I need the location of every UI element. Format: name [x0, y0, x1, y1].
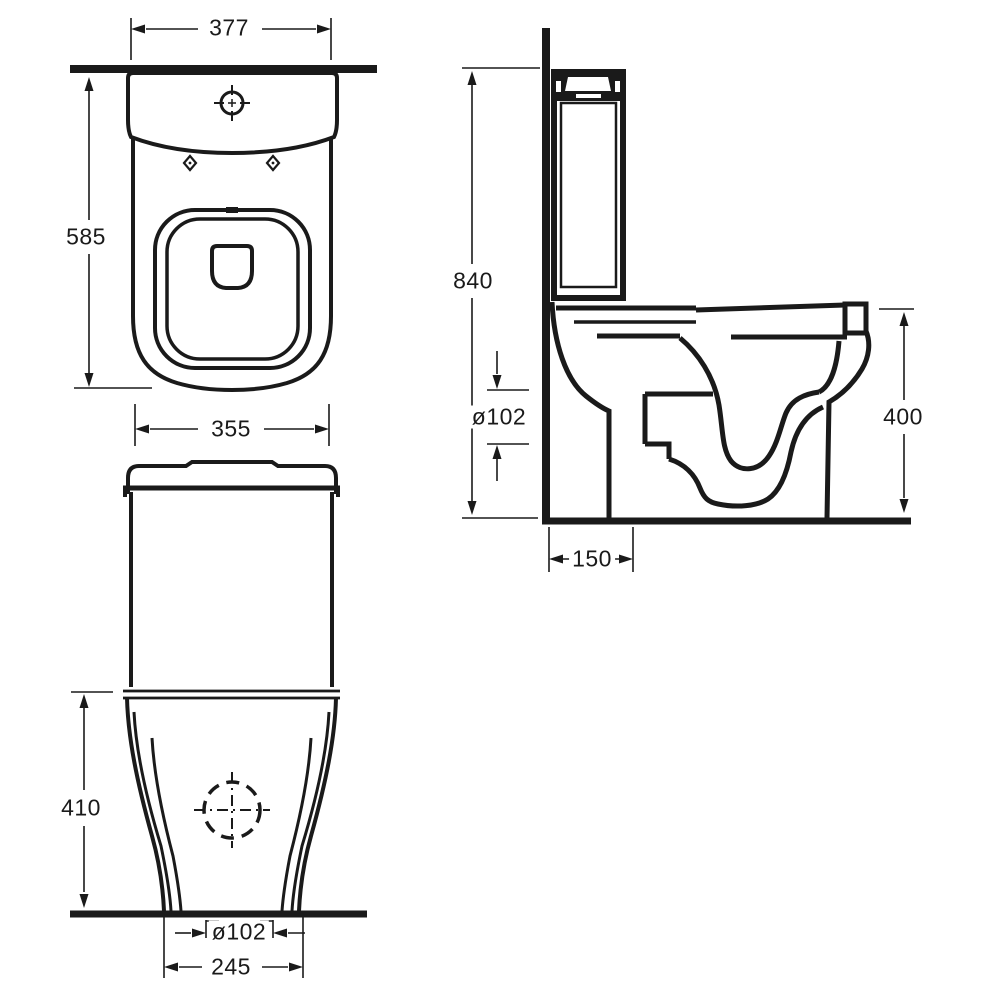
side-view-outlet — [645, 394, 713, 459]
front-view-cistern-body — [131, 492, 332, 687]
side-view-pedestal-front — [827, 331, 869, 518]
side-view-cistern-interior — [561, 103, 616, 287]
drain-outlet-icon — [194, 772, 270, 848]
side-view-lid-recess — [565, 77, 611, 91]
dim-label-side-overall-height: 840 — [450, 270, 496, 293]
side-view-seat — [696, 305, 845, 310]
drawing-linework — [0, 0, 1000, 1000]
side-view-bowl-interior — [680, 338, 819, 469]
front-view-junction — [123, 691, 340, 698]
dim-label-front-base-width: 245 — [208, 956, 254, 979]
top-view-sump — [212, 246, 252, 288]
side-view-trap — [669, 407, 823, 506]
front-view-dimensions — [71, 692, 305, 978]
front-view — [70, 462, 367, 914]
dim-label-side-bowl-height: 400 — [880, 406, 926, 429]
side-view-seat-front — [845, 304, 866, 333]
top-view — [70, 69, 377, 390]
dim-label-top-width: 377 — [206, 17, 252, 40]
front-view-pedestal-left — [127, 698, 164, 911]
dim-label-side-outlet-diameter: ø102 — [469, 406, 529, 429]
dim-label-front-outlet-diameter: ø102 — [209, 921, 269, 944]
dim-label-top-depth: 585 — [63, 226, 109, 249]
dim-label-side-outlet-setout: 150 — [569, 548, 615, 571]
technical-drawing-canvas: 377 585 355 410 ø102 245 840 ø102 400 15… — [0, 0, 1000, 1000]
side-view — [542, 28, 911, 521]
dim-label-cistern-width: 355 — [208, 418, 254, 441]
dim-label-front-base-height: 410 — [58, 797, 104, 820]
front-view-pedestal-right — [299, 698, 336, 911]
